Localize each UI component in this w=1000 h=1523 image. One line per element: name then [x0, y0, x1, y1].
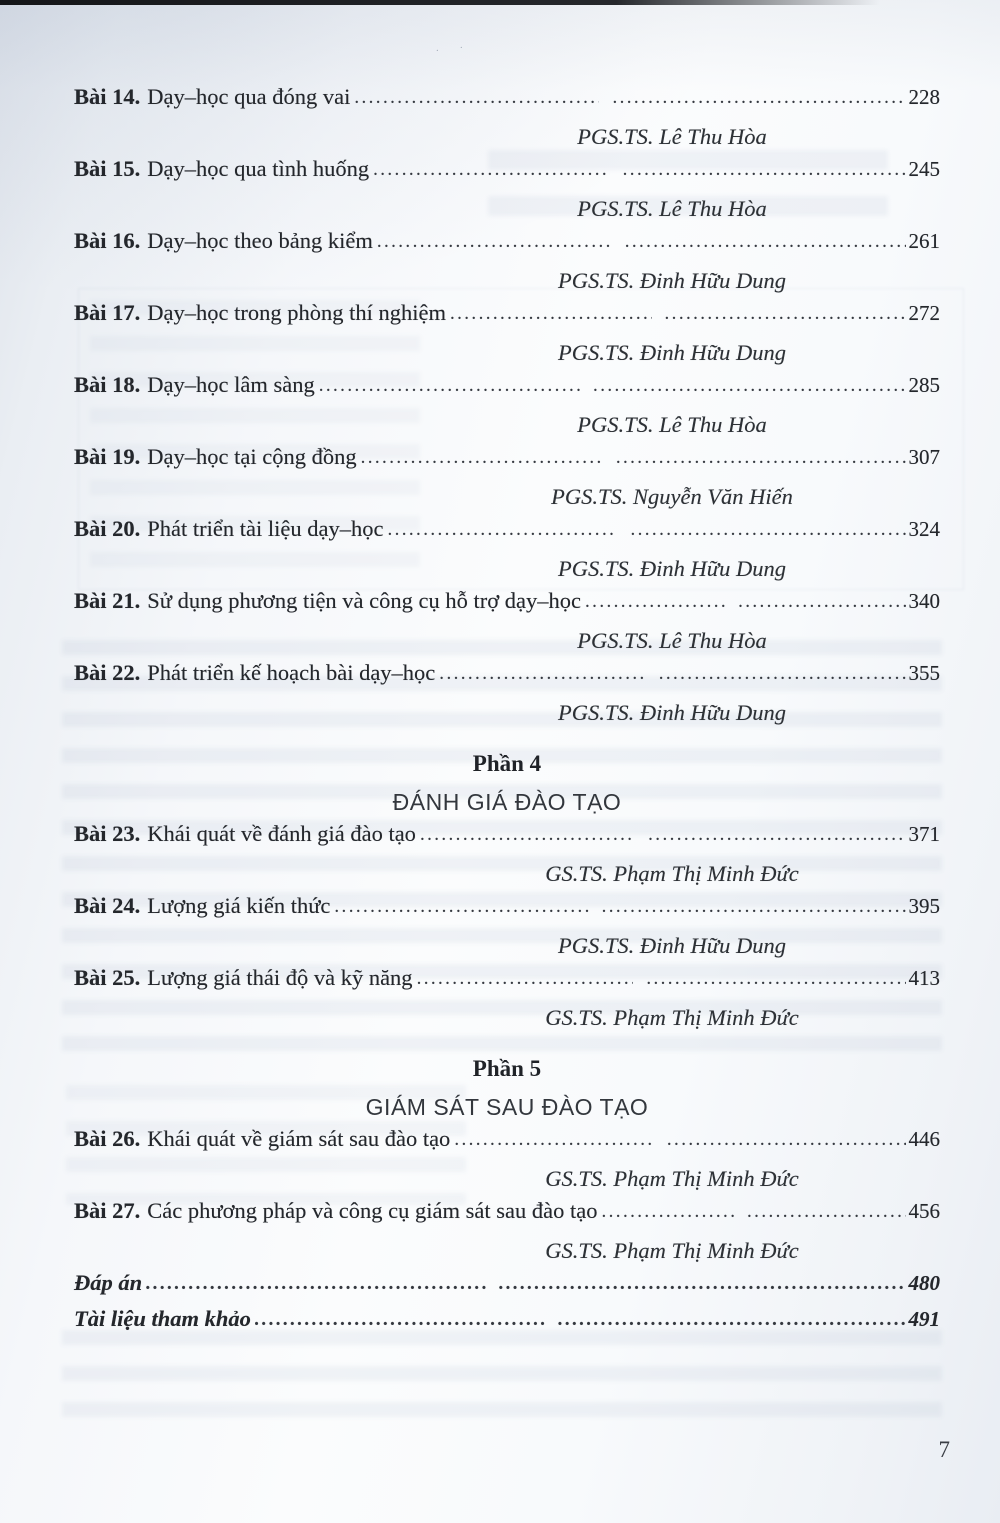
toc-entry-row: Bài 18.Dạy–học lâm sàng285: [74, 372, 940, 408]
entry-author: PGS.TS. Đinh Hữu Dung: [74, 696, 940, 732]
toc-entry: Bài 27.Các phương pháp và công cụ giám s…: [74, 1198, 940, 1270]
entry-title: Dạy–học qua đóng vai: [147, 84, 350, 110]
toc-entry-row: Bài 15.Dạy–học qua tình huống245: [74, 156, 940, 192]
entry-page-number: 456: [906, 1199, 941, 1224]
leader-dots: [454, 1129, 654, 1151]
toc-entry-row: Bài 27.Các phương pháp và công cụ giám s…: [74, 1198, 940, 1234]
backmatter-row: Đáp án480: [74, 1270, 940, 1306]
entry-author: PGS.TS. Lê Thu Hòa: [74, 192, 940, 228]
entry-page-number: 228: [906, 85, 941, 110]
leader-dots: [319, 375, 580, 397]
entry-author: PGS.TS. Đinh Hữu Dung: [74, 336, 940, 372]
leader-dots: [439, 663, 645, 685]
leader-dots: [747, 1201, 905, 1223]
entry-author: GS.TS. Phạm Thị Minh Đức: [74, 857, 940, 893]
entry-page-number: 413: [906, 966, 941, 991]
leader-dots: [146, 1273, 486, 1295]
backmatter-page-number: 491: [906, 1307, 941, 1332]
leader-dots: [387, 519, 617, 541]
entry-number: Bài 16.: [74, 228, 140, 254]
leader-dots: [625, 231, 906, 253]
entry-page-number: 371: [906, 822, 941, 847]
leader-dots: [667, 1129, 906, 1151]
toc-entry: Bài 17.Dạy–học trong phòng thí nghiệm272…: [74, 300, 940, 372]
leader-dots: [593, 375, 905, 397]
toc-entry: Bài 18.Dạy–học lâm sàng285PGS.TS. Lê Thu…: [74, 372, 940, 444]
entry-number: Bài 19.: [74, 444, 140, 470]
leader-dots: [585, 591, 725, 613]
leader-dots: [377, 231, 612, 253]
leader-dots: [602, 1201, 735, 1223]
entry-page-number: 245: [906, 157, 941, 182]
leader-dots: [646, 968, 905, 990]
page-number: 7: [939, 1437, 951, 1463]
entry-page-number: 307: [906, 445, 941, 470]
leader-dots: [630, 519, 905, 541]
scan-speck-marks: . ·: [436, 42, 480, 54]
toc-entry-row: Bài 19.Dạy–học tại cộng đồng307: [74, 444, 940, 480]
leader-dots: [665, 303, 906, 325]
toc-entry: Bài 25.Lượng giá thái độ và kỹ năng413GS…: [74, 965, 940, 1037]
entry-author: PGS.TS. Lê Thu Hòa: [74, 408, 940, 444]
entry-author: GS.TS. Phạm Thị Minh Đức: [74, 1234, 940, 1270]
leader-dots: [417, 968, 634, 990]
part-label: Phần 5: [74, 1050, 940, 1088]
entry-page-number: 446: [906, 1127, 941, 1152]
part-heading: Phần 4ĐÁNH GIÁ ĐÀO TẠO: [74, 745, 940, 821]
entry-author: PGS.TS. Lê Thu Hòa: [74, 624, 940, 660]
leader-dots: [450, 303, 652, 325]
entry-title: Dạy–học trong phòng thí nghiệm: [147, 300, 446, 326]
toc-entry-row: Bài 25.Lượng giá thái độ và kỹ năng413: [74, 965, 940, 1001]
bleed-through-bottom: [62, 1330, 942, 1430]
entry-title: Lượng giá thái độ và kỹ năng: [147, 965, 412, 991]
entry-title: Dạy–học lâm sàng: [147, 372, 314, 398]
entry-title: Các phương pháp và công cụ giám sát sau …: [147, 1198, 597, 1224]
entry-author: GS.TS. Phạm Thị Minh Đức: [74, 1162, 940, 1198]
part-heading: Phần 5GIÁM SÁT SAU ĐÀO TẠO: [74, 1050, 940, 1126]
entry-title: Dạy–học tại cộng đồng: [147, 444, 356, 470]
entry-title: Lượng giá kiến thức: [147, 893, 330, 919]
entry-author: PGS.TS. Đinh Hữu Dung: [74, 929, 940, 965]
entry-author: PGS.TS. Đinh Hữu Dung: [74, 264, 940, 300]
toc-entry: Bài 19.Dạy–học tại cộng đồng307PGS.TS. N…: [74, 444, 940, 516]
toc-entry: Bài 14.Dạy–học qua đóng vai228PGS.TS. Lê…: [74, 84, 940, 156]
toc-entry: Bài 16.Dạy–học theo bảng kiểm261PGS.TS. …: [74, 228, 940, 300]
leader-dots: [616, 447, 906, 469]
toc-entry-row: Bài 24.Lượng giá kiến thức395: [74, 893, 940, 929]
entry-author: PGS.TS. Nguyễn Văn Hiến: [74, 480, 940, 516]
leader-dots: [361, 447, 603, 469]
toc-entry-row: Bài 17.Dạy–học trong phòng thí nghiệm272: [74, 300, 940, 336]
entry-number: Bài 18.: [74, 372, 140, 398]
leader-dots: [623, 159, 906, 181]
entry-page-number: 324: [906, 517, 941, 542]
entry-title: Dạy–học theo bảng kiểm: [147, 228, 373, 254]
leader-dots: [602, 896, 906, 918]
entry-number: Bài 23.: [74, 821, 140, 847]
leader-dots: [499, 1273, 905, 1295]
leader-dots: [648, 824, 905, 846]
part-title: GIÁM SÁT SAU ĐÀO TẠO: [74, 1088, 940, 1126]
entry-number: Bài 21.: [74, 588, 140, 614]
entry-page-number: 355: [906, 661, 941, 686]
toc-entry-row: Bài 16.Dạy–học theo bảng kiểm261: [74, 228, 940, 264]
scan-artifact-top-edge: [0, 0, 880, 5]
toc-entry: Bài 15.Dạy–học qua tình huống245PGS.TS. …: [74, 156, 940, 228]
entry-title: Khái quát về đánh giá đào tạo: [147, 821, 416, 847]
table-of-contents: Bài 14.Dạy–học qua đóng vai228PGS.TS. Lê…: [74, 84, 940, 1342]
entry-title: Phát triển kế hoạch bài dạy–học: [147, 660, 435, 686]
entry-page-number: 261: [906, 229, 941, 254]
entry-author: PGS.TS. Đinh Hữu Dung: [74, 552, 940, 588]
toc-entry: Bài 21.Sử dụng phương tiện và công cụ hỗ…: [74, 588, 940, 660]
leader-dots: [354, 87, 599, 109]
toc-entry: Bài 20.Phát triển tài liệu dạy–học324PGS…: [74, 516, 940, 588]
toc-entry-row: Bài 22.Phát triển kế hoạch bài dạy–học35…: [74, 660, 940, 696]
scanned-book-page: { "page_number": "7", "toc": { "sections…: [0, 0, 1000, 1523]
backmatter-title: Đáp án: [74, 1270, 142, 1296]
toc-entry-row: Bài 21.Sử dụng phương tiện và công cụ hỗ…: [74, 588, 940, 624]
backmatter-title: Tài liệu tham khảo: [74, 1306, 251, 1332]
toc-entry-row: Bài 23.Khái quát về đánh giá đào tạo371: [74, 821, 940, 857]
entry-title: Khái quát về giám sát sau đào tạo: [147, 1126, 450, 1152]
part-label: Phần 4: [74, 745, 940, 783]
backmatter-section: Đáp án480Tài liệu tham khảo491: [74, 1270, 940, 1342]
entry-page-number: 285: [906, 373, 941, 398]
backmatter-row: Tài liệu tham khảo491: [74, 1306, 940, 1342]
entry-number: Bài 25.: [74, 965, 140, 991]
toc-entry-row: Bài 26.Khái quát về giám sát sau đào tạo…: [74, 1126, 940, 1162]
leader-dots: [612, 87, 905, 109]
entry-number: Bài 20.: [74, 516, 140, 542]
entry-number: Bài 15.: [74, 156, 140, 182]
leader-dots: [558, 1309, 905, 1331]
toc-entry: Bài 26.Khái quát về giám sát sau đào tạo…: [74, 1126, 940, 1198]
toc-entry: Bài 23.Khái quát về đánh giá đào tạo371G…: [74, 821, 940, 893]
leader-dots: [659, 663, 906, 685]
entry-number: Bài 27.: [74, 1198, 140, 1224]
entry-page-number: 272: [906, 301, 941, 326]
leader-dots: [420, 824, 635, 846]
entry-title: Sử dụng phương tiện và công cụ hỗ trợ dạ…: [147, 588, 581, 614]
entry-title: Dạy–học qua tình huống: [147, 156, 369, 182]
entry-author: PGS.TS. Lê Thu Hòa: [74, 120, 940, 156]
part-title: ĐÁNH GIÁ ĐÀO TẠO: [74, 783, 940, 821]
entry-author: GS.TS. Phạm Thị Minh Đức: [74, 1001, 940, 1037]
leader-dots: [334, 896, 588, 918]
entry-title: Phát triển tài liệu dạy–học: [147, 516, 383, 542]
toc-entry: Bài 24.Lượng giá kiến thức395PGS.TS. Đin…: [74, 893, 940, 965]
entry-number: Bài 26.: [74, 1126, 140, 1152]
leader-dots: [738, 591, 905, 613]
backmatter-page-number: 480: [906, 1271, 941, 1296]
leader-dots: [373, 159, 610, 181]
toc-entry: Bài 22.Phát triển kế hoạch bài dạy–học35…: [74, 660, 940, 732]
entry-number: Bài 14.: [74, 84, 140, 110]
entry-number: Bài 22.: [74, 660, 140, 686]
leader-dots: [255, 1309, 545, 1331]
entry-page-number: 395: [906, 894, 941, 919]
entry-number: Bài 17.: [74, 300, 140, 326]
entry-page-number: 340: [906, 589, 941, 614]
toc-entry-row: Bài 20.Phát triển tài liệu dạy–học324: [74, 516, 940, 552]
toc-entry-row: Bài 14.Dạy–học qua đóng vai228: [74, 84, 940, 120]
entry-number: Bài 24.: [74, 893, 140, 919]
